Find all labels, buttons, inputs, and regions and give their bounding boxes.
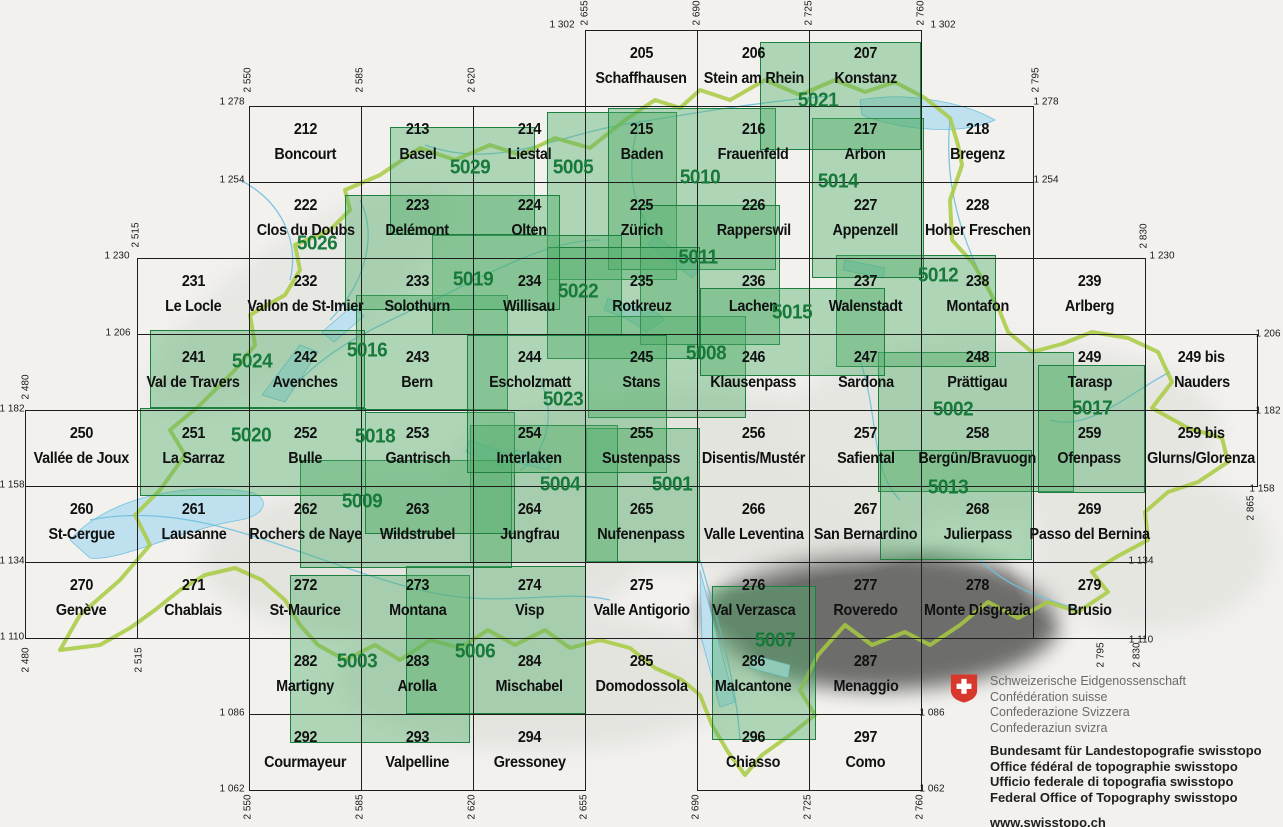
composite-label-5024: 5024 [232,351,272,374]
composite-label-5003: 5003 [337,651,377,674]
composite-label-5002: 5002 [933,399,973,422]
swiss-coat-of-arms-icon [950,673,978,709]
office-name-it: Ufficio federale di topografia swisstopo [990,774,1283,790]
office-name-de: Bundesamt für Landestopografie swisstopo [990,743,1283,759]
composite-label-5017: 5017 [1072,398,1112,421]
composite-label-5014: 5014 [818,171,858,194]
composite-label-5015: 5015 [772,302,812,325]
office-name-en: Federal Office of Topography swisstopo [990,790,1283,806]
composite-label-5009: 5009 [342,491,382,514]
office-name-fr: Office fédéral de topographie swisstopo [990,759,1283,775]
confederation-name-rm: Confederaziun svizra [990,721,1283,737]
composite-label-5026: 5026 [297,233,337,256]
composite-label-5005: 5005 [553,157,593,180]
composite-label-5008: 5008 [686,343,726,366]
composite-label-5001: 5001 [652,474,692,497]
composite-label-5016: 5016 [347,340,387,363]
swisstopo-map-sheet-index: 205Schaffhausen206Stein am Rhein207Konst… [0,0,1283,827]
composite-label-5019: 5019 [453,269,493,292]
swisstopo-url: www.swisstopo.ch [990,815,1283,827]
confederation-name-de: Schweizerische Eidgenossenschaft [990,674,1283,690]
publisher-block: Schweizerische Eidgenossenschaft Confédé… [950,670,1283,827]
confederation-names: Schweizerische Eidgenossenschaft Confédé… [990,674,1283,736]
composite-label-5029: 5029 [450,157,490,180]
confederation-name-it: Confederazione Svizzera [990,705,1283,721]
composite-label-5021: 5021 [798,90,838,113]
composite-label-5020: 5020 [231,425,271,448]
office-names: Bundesamt für Landestopografie swisstopo… [990,743,1283,805]
composite-label-5013: 5013 [928,477,968,500]
composite-label-5007: 5007 [755,630,795,653]
composite-label-5018: 5018 [355,426,395,449]
composite-label-5004: 5004 [540,474,580,497]
composite-label-5022: 5022 [558,281,598,304]
composite-label-5012: 5012 [918,265,958,288]
confederation-name-fr: Confédération suisse [990,690,1283,706]
composite-label-5010: 5010 [680,167,720,190]
composite-label-5011: 5011 [678,247,717,270]
composite-label-5006: 5006 [455,641,495,664]
composite-label-5023: 5023 [543,389,583,412]
